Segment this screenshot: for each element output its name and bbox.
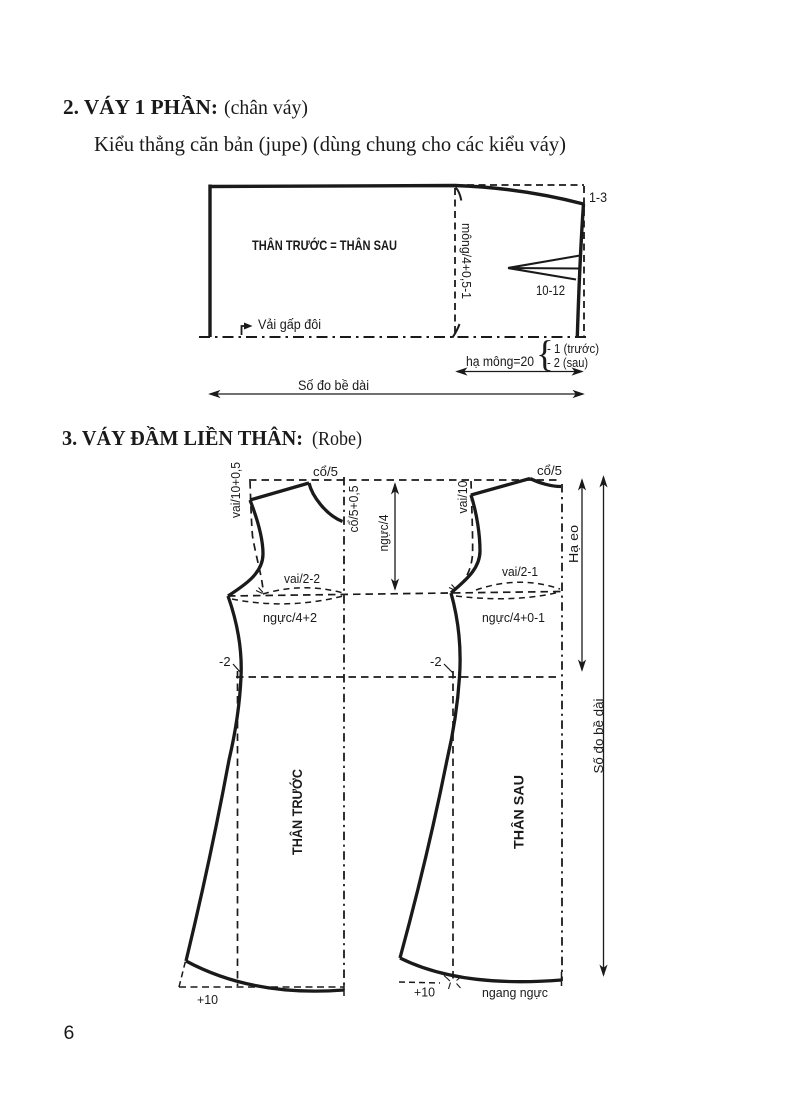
svg-text:3. VÁY ĐẦM LIỀN THÂN:: 3. VÁY ĐẦM LIỀN THÂN: [62, 426, 303, 450]
svg-text:Kiểu thẳng căn bản (jupe) (dùn: Kiểu thẳng căn bản (jupe) (dùng chung ch… [94, 132, 566, 156]
svg-text:THÂN TRƯỚC = THÂN SAU: THÂN TRƯỚC = THÂN SAU [252, 236, 397, 253]
svg-text:ngực/4+0-1: ngực/4+0-1 [482, 610, 545, 625]
svg-text:- 1 (trước): - 1 (trước) [547, 341, 599, 356]
svg-text:(Robe): (Robe) [312, 429, 362, 450]
svg-text:6: 6 [64, 1022, 75, 1044]
svg-text:+10: +10 [414, 985, 435, 1000]
svg-text:ngang ngực: ngang ngực [482, 985, 548, 1000]
svg-text:- 2 (sau): - 2 (sau) [547, 355, 588, 370]
svg-text:Vải gấp đôi: Vải gấp đôi [258, 317, 321, 332]
svg-text:1-3: 1-3 [589, 190, 607, 205]
svg-text:THÂN SAU: THÂN SAU [510, 775, 527, 849]
svg-text:Số đo bề dài: Số đo bề dài [298, 378, 369, 393]
svg-text:cổ/5: cổ/5 [313, 464, 338, 479]
svg-text:+10: +10 [197, 992, 218, 1007]
svg-text:Hạ eo: Hạ eo [566, 525, 581, 563]
svg-text:vai/2-1: vai/2-1 [502, 565, 538, 579]
svg-text:Số đo bề dài: Số đo bề dài [591, 698, 606, 773]
svg-text:10-12: 10-12 [536, 283, 565, 298]
svg-text:hạ mông=20: hạ mông=20 [466, 354, 534, 369]
svg-text:vai/10+0,5: vai/10+0,5 [228, 462, 243, 518]
svg-text:2. VÁY 1 PHẦN:: 2. VÁY 1 PHẦN: [63, 95, 218, 119]
svg-text:cổ/5: cổ/5 [537, 463, 562, 478]
svg-text:mông/4+0,5-1: mông/4+0,5-1 [459, 223, 474, 299]
svg-text:-2: -2 [219, 654, 231, 669]
svg-text:vai/2-2: vai/2-2 [284, 572, 320, 586]
svg-text:cổ/5+0,5: cổ/5+0,5 [346, 486, 361, 533]
svg-text:vai/10: vai/10 [455, 481, 470, 514]
svg-text:-2: -2 [430, 654, 442, 669]
svg-text:(chân váy): (chân váy) [224, 98, 308, 119]
svg-text:THÂN TRƯỚC: THÂN TRƯỚC [288, 769, 305, 855]
svg-text:ngực/4+2: ngực/4+2 [263, 610, 317, 625]
svg-text:ngực/4: ngực/4 [376, 515, 391, 552]
